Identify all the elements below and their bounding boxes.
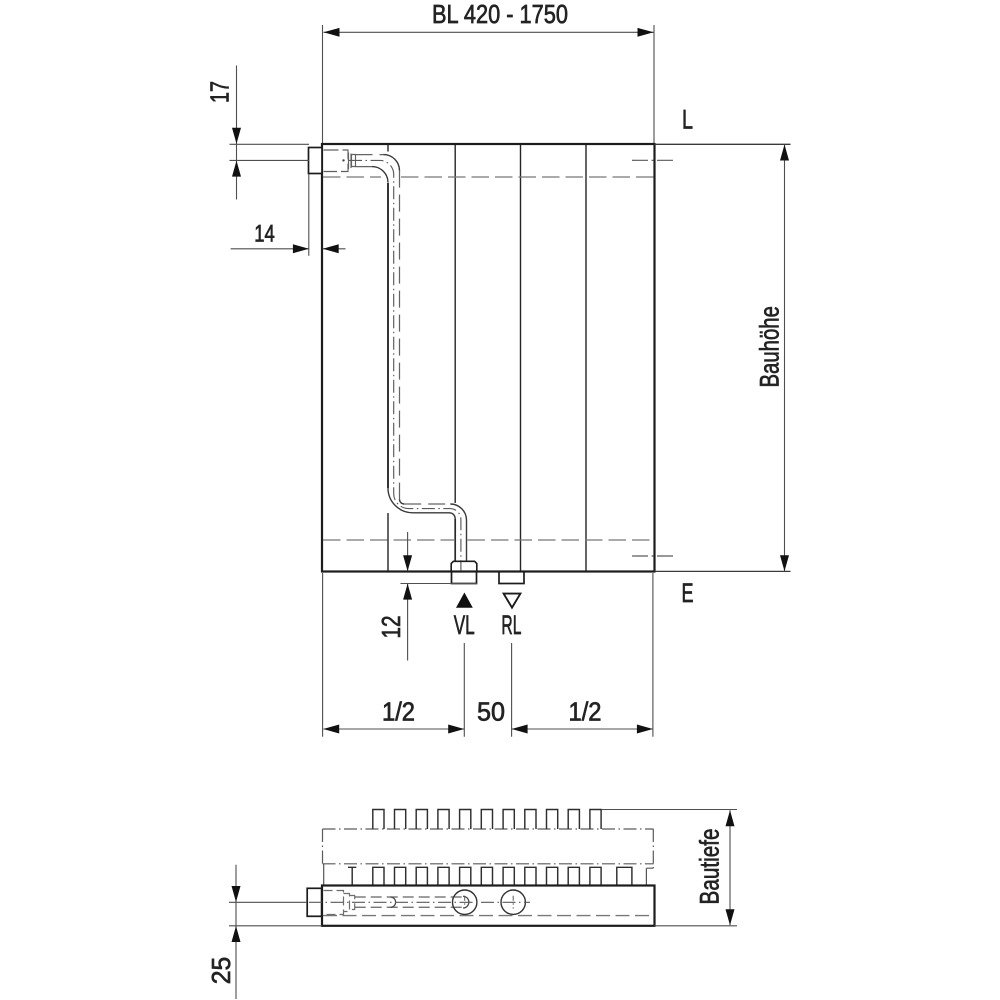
svg-text:14: 14	[254, 221, 275, 248]
svg-text:L: L	[682, 105, 693, 135]
svg-text:RL: RL	[501, 610, 521, 640]
svg-text:1/2: 1/2	[569, 697, 602, 727]
svg-text:12: 12	[376, 616, 406, 639]
svg-text:17: 17	[205, 81, 235, 103]
svg-text:Bauhöhe: Bauhöhe	[754, 306, 784, 388]
svg-text:50: 50	[477, 697, 505, 727]
svg-text:Bautiefe: Bautiefe	[695, 829, 725, 905]
svg-text:E: E	[682, 578, 694, 608]
svg-text:BL 420 - 1750: BL 420 - 1750	[432, 0, 568, 29]
svg-text:25: 25	[206, 957, 236, 985]
svg-text:VL: VL	[454, 610, 475, 640]
svg-text:1/2: 1/2	[382, 697, 415, 727]
